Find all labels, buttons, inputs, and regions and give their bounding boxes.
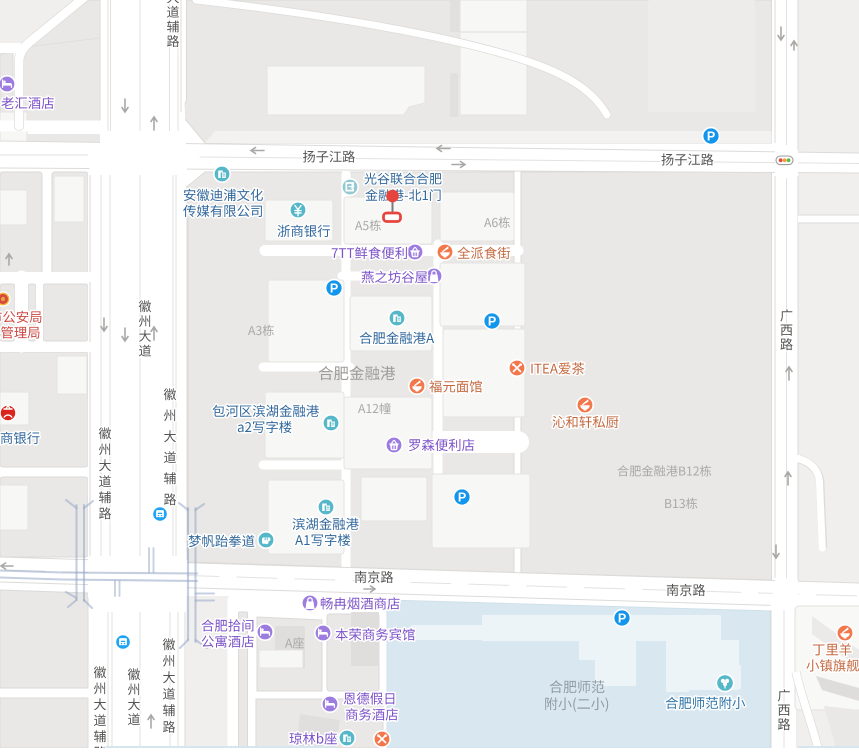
svg-text:P: P [458, 491, 466, 505]
svg-text:P: P [618, 612, 626, 626]
svg-text:P: P [330, 282, 338, 296]
svg-text:P: P [707, 130, 715, 144]
svg-text:P: P [488, 315, 496, 329]
